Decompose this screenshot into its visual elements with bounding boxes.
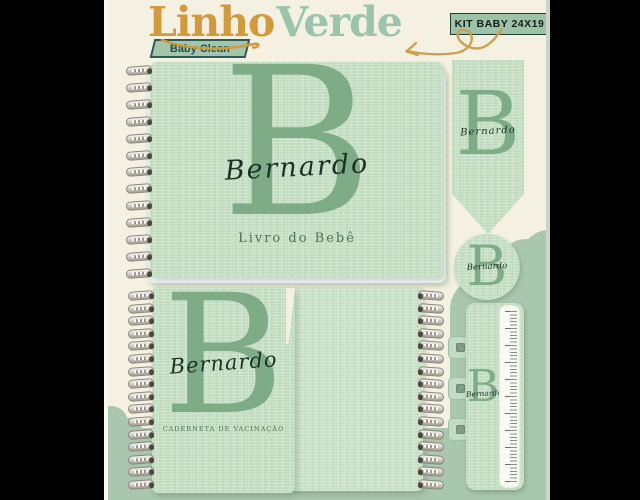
ruler-monogram: B: [466, 365, 500, 409]
spiral-coil: [126, 268, 153, 279]
spiral-coil: [126, 116, 153, 127]
spiral-coil: [418, 340, 445, 351]
spiral-coil: [418, 366, 445, 377]
spiral-coil: [418, 315, 445, 326]
photo-edge-right: [546, 0, 550, 500]
spiral-coil: [126, 183, 153, 194]
ruler: B Bernardo: [466, 303, 524, 490]
spiral-coil: [128, 429, 155, 440]
vaccination-book-cover: B Bernardo CADERNETA DE VACINAÇÃO: [152, 287, 295, 493]
spiral-coil: [126, 200, 153, 211]
spiral-coil: [128, 403, 155, 414]
spiral-coil: [418, 466, 445, 477]
spiral-coil: [418, 403, 445, 414]
spiral-coil: [126, 167, 153, 178]
spiral-coil: [126, 99, 153, 110]
round-tag: B Bernardo: [454, 234, 520, 300]
spiral-coil: [128, 441, 155, 452]
spiral-coil: [126, 234, 153, 245]
logo-swash-icon: [160, 38, 264, 52]
spiral-coil: [418, 479, 445, 490]
tab-slot: [456, 425, 465, 434]
bookmark-tag: B Bernardo: [452, 60, 524, 234]
product-mockup-image: LinhoVerde Baby Clean KIT BABY 24X19 B B…: [0, 0, 640, 500]
spiral-coil: [128, 378, 155, 389]
spiral-binding: [418, 291, 444, 489]
mockup-content: LinhoVerde Baby Clean KIT BABY 24X19 B B…: [104, 0, 550, 500]
spiral-coil: [128, 303, 155, 314]
spiral-binding: [128, 291, 154, 489]
spiral-coil: [126, 65, 153, 76]
spiral-coil: [128, 315, 155, 326]
spiral-coil: [418, 378, 445, 389]
spiral-binding: [126, 66, 152, 278]
back-notebook-cover: [290, 287, 423, 491]
spiral-coil: [128, 466, 155, 477]
spiral-coil: [126, 217, 153, 228]
spiral-coil: [128, 328, 155, 339]
baby-book-caption: Livro do Bebê: [150, 231, 444, 246]
spiral-coil: [418, 416, 445, 427]
vaccination-book-caption: CADERNETA DE VACINAÇÃO: [152, 425, 295, 433]
letterbox-right: [550, 0, 640, 500]
tab-slot: [456, 343, 465, 352]
spiral-coil: [418, 328, 445, 339]
spiral-coil: [128, 290, 155, 301]
brand-logo: LinhoVerde: [148, 2, 402, 43]
spiral-coil: [418, 353, 445, 364]
spiral-coil: [418, 429, 445, 440]
spiral-coil: [128, 454, 155, 465]
spiral-coil: [128, 353, 155, 364]
spiral-coil: [128, 366, 155, 377]
spiral-coil: [418, 303, 445, 314]
spiral-coil: [126, 82, 153, 93]
ruler-ticks-minor: [510, 311, 517, 482]
spiral-coil: [128, 340, 155, 351]
spiral-coil: [126, 251, 153, 262]
spiral-coil: [126, 133, 153, 144]
spiral-coil: [126, 150, 153, 161]
spiral-coil: [418, 391, 445, 402]
spiral-coil: [128, 479, 155, 490]
baby-book-cover: B Bernardo Livro do Bebê: [150, 62, 444, 278]
spiral-coil: [128, 416, 155, 427]
spiral-coil: [128, 391, 155, 402]
ruler-scale: [499, 305, 520, 488]
tab-slot: [456, 384, 465, 393]
spiral-coil: [418, 441, 445, 452]
spiral-coil: [418, 454, 445, 465]
photo-edge-left: [104, 0, 108, 500]
ruler-name-script: Bernardo: [466, 388, 500, 399]
brand-logo-verde: Verde: [276, 0, 402, 46]
baby-book-monogram: B: [150, 40, 444, 246]
letterbox-left: [0, 0, 104, 500]
spiral-coil: [418, 290, 445, 301]
arrow-doodle-icon: [394, 26, 508, 62]
